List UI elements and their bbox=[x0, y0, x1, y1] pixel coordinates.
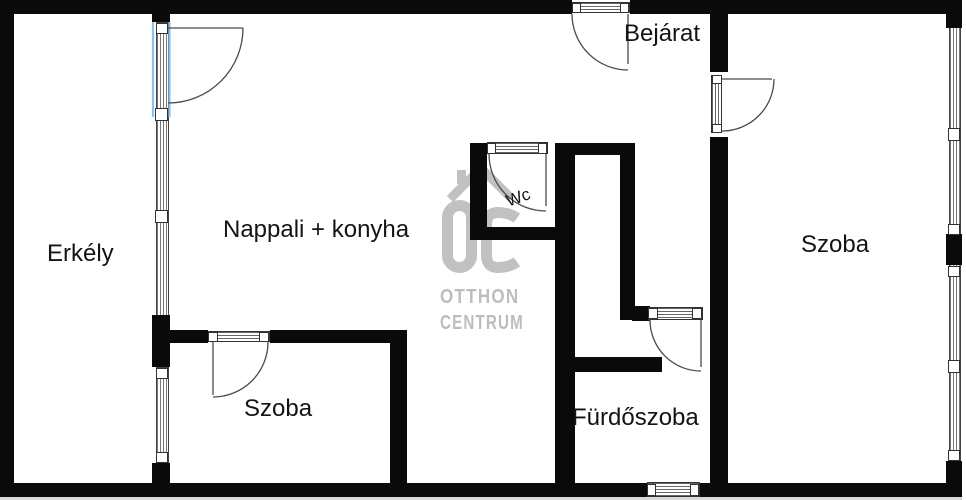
floor-plan: OTTHON CENTRUM bbox=[0, 0, 966, 500]
room-label-nappali: Nappali + konyha bbox=[223, 216, 409, 244]
balcony-door-highlight bbox=[153, 22, 170, 117]
bathroom-door-swing bbox=[650, 320, 701, 371]
room-label-erkely: Erkély bbox=[47, 240, 114, 268]
room-label-furdoszoba: Fürdőszoba bbox=[572, 404, 699, 432]
room-label-szoba-bottom: Szoba bbox=[244, 395, 312, 423]
right-room-door-swing bbox=[722, 79, 774, 131]
szoba-bottom-door-swing bbox=[213, 342, 268, 397]
room-label-bejarat: Bejárat bbox=[624, 20, 700, 48]
balcony-door-swing bbox=[168, 28, 243, 103]
room-label-szoba-right: Szoba bbox=[801, 231, 869, 259]
entrance-door-swing bbox=[572, 14, 628, 70]
